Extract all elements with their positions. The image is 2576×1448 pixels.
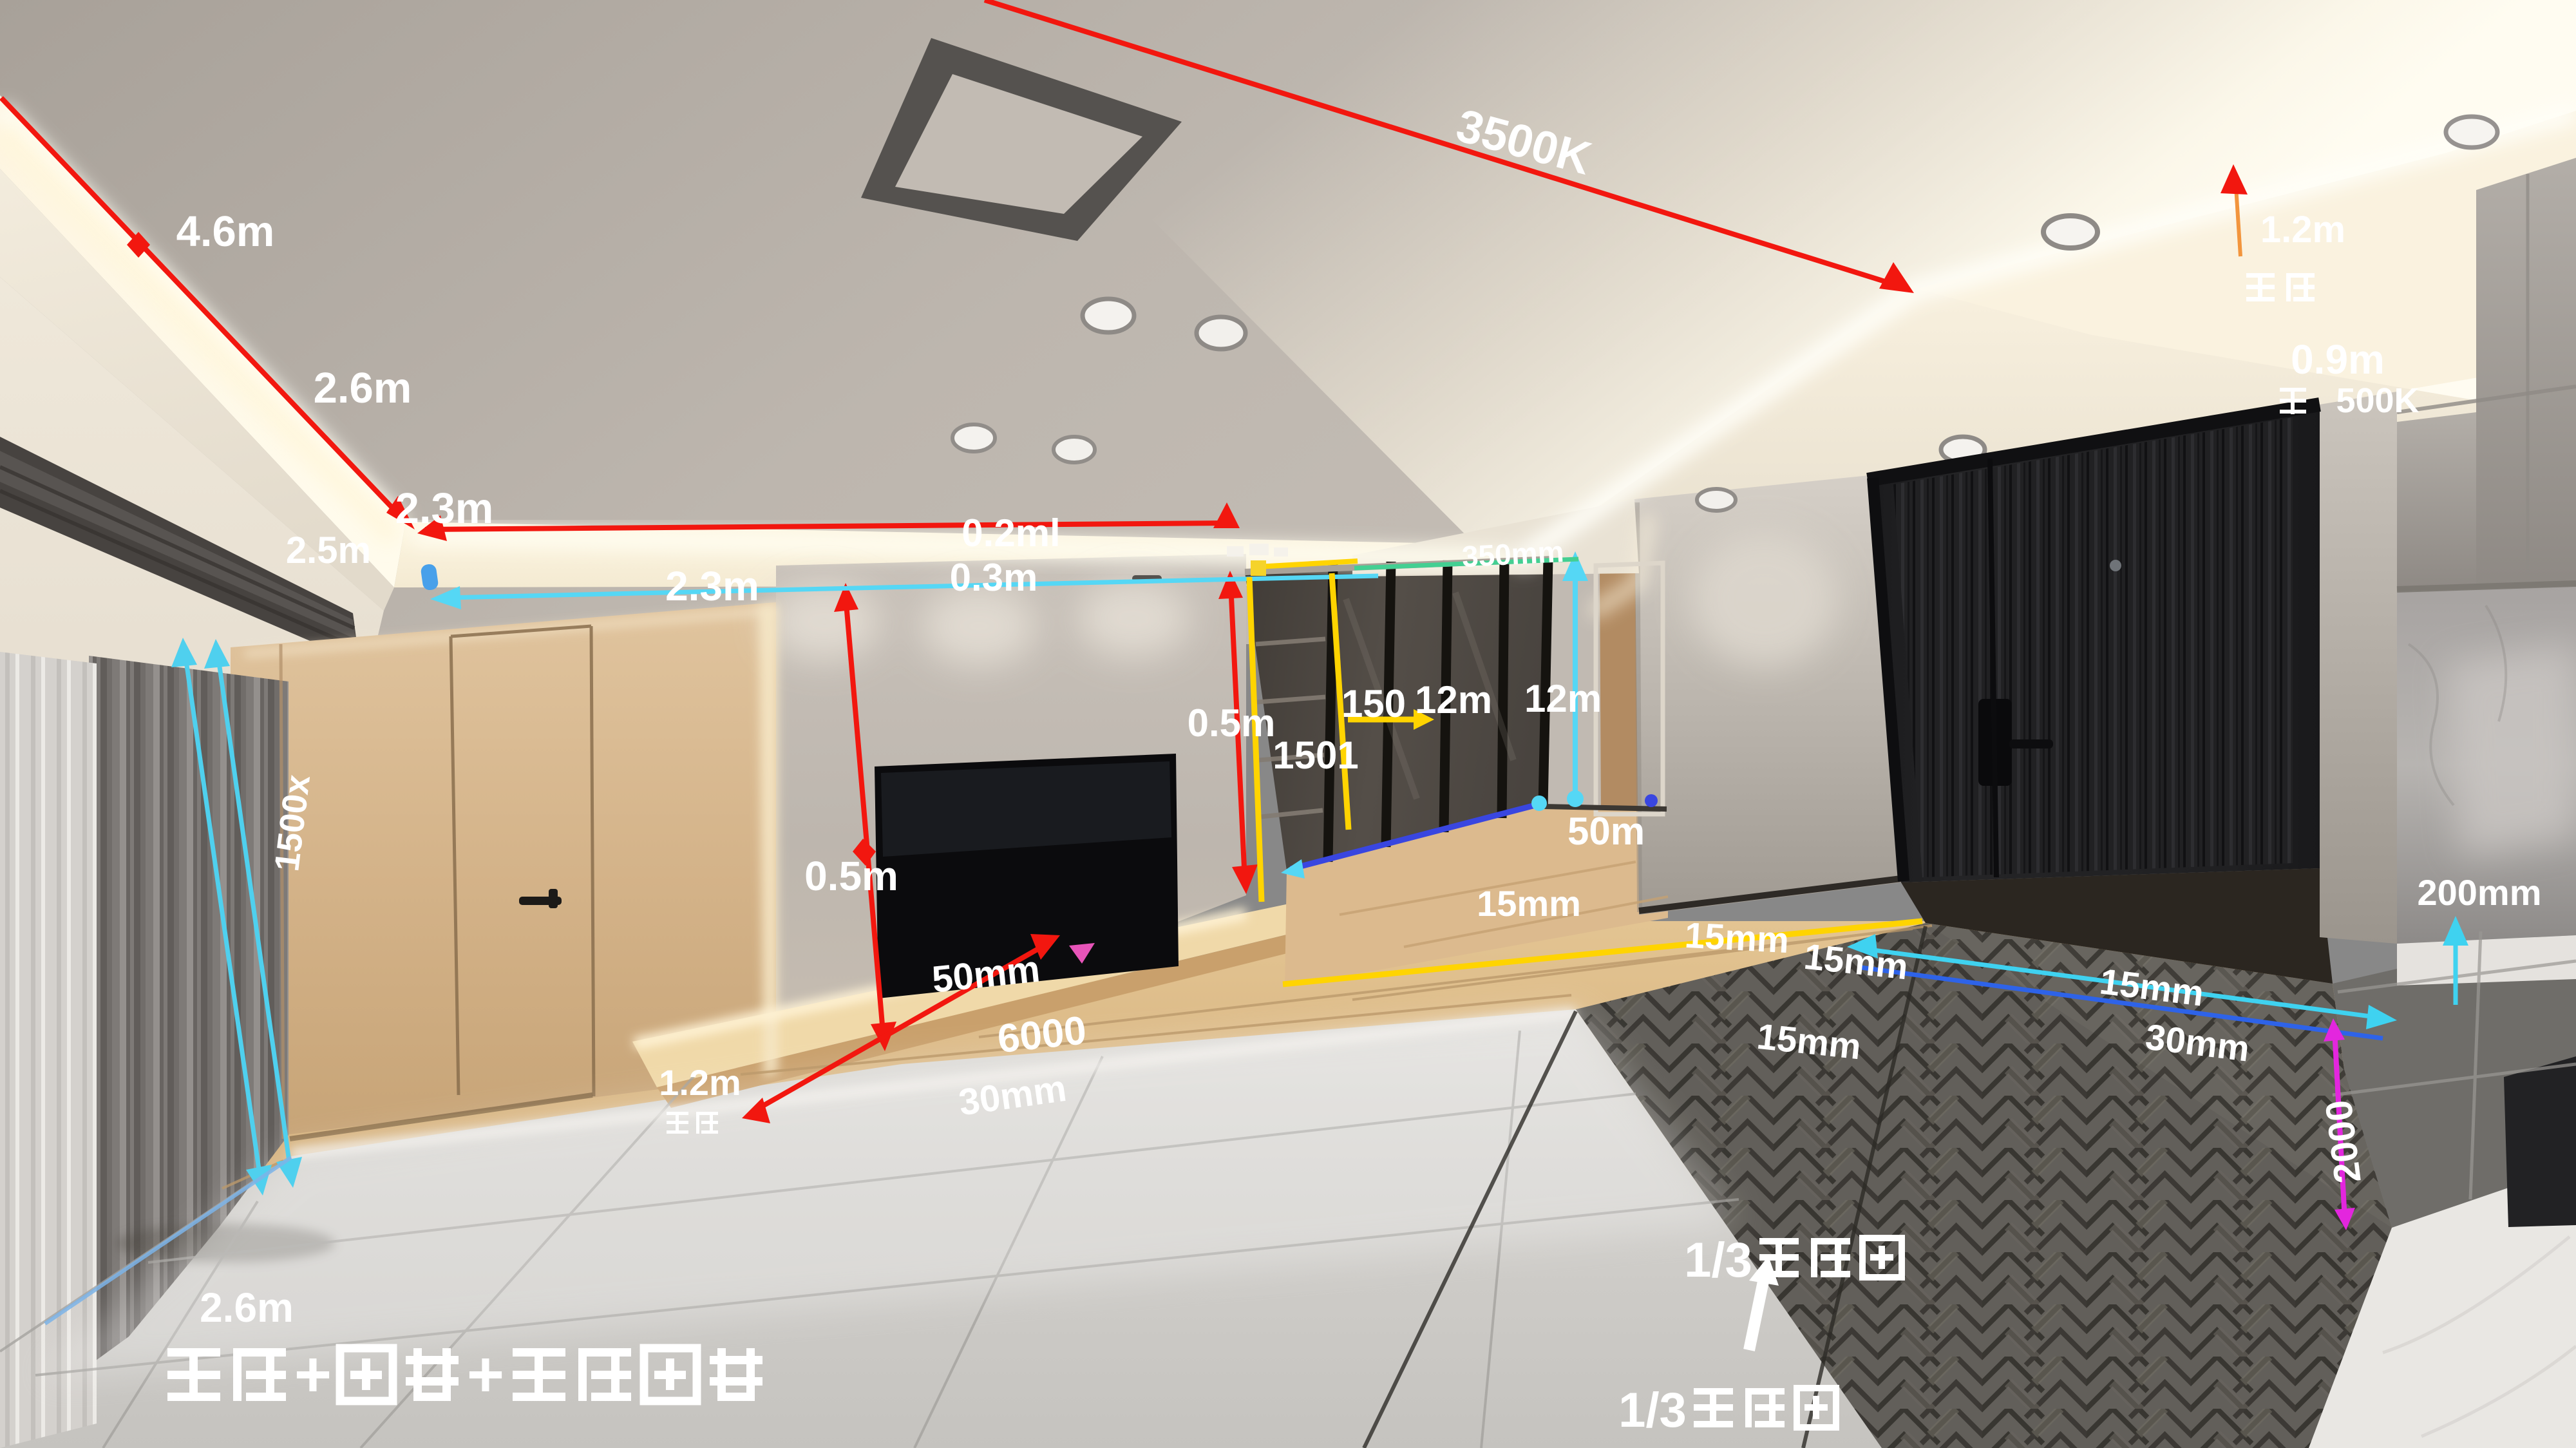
svg-text:1501: 1501	[1273, 734, 1358, 777]
svg-text:0.9m: 0.9m	[2291, 336, 2385, 383]
svg-text:350mm: 350mm	[1461, 535, 1565, 573]
svg-text:2.3m: 2.3m	[665, 563, 759, 609]
svg-text:0.5m: 0.5m	[1188, 701, 1276, 745]
svg-text:150: 150	[1341, 682, 1406, 725]
svg-text:12m: 12m	[1524, 677, 1602, 720]
svg-text:1.2m: 1.2m	[2260, 209, 2345, 251]
svg-text:12m: 12m	[1415, 678, 1492, 721]
svg-text:0.3m: 0.3m	[950, 556, 1038, 599]
svg-text:+: +	[294, 1338, 332, 1411]
svg-text:2.6m: 2.6m	[200, 1284, 294, 1331]
svg-text:0.2ml: 0.2ml	[961, 511, 1060, 555]
svg-text:2.3m: 2.3m	[395, 484, 494, 533]
svg-text:2.5m: 2.5m	[286, 529, 371, 571]
svg-text:+: +	[467, 1338, 504, 1411]
svg-text:0.5m: 0.5m	[804, 853, 898, 899]
svg-text:15mm: 15mm	[1477, 883, 1581, 924]
svg-text:1.2m: 1.2m	[659, 1062, 741, 1103]
svg-text:2.6m: 2.6m	[314, 364, 412, 412]
svg-text:15mm: 15mm	[1684, 915, 1790, 960]
svg-text:200mm: 200mm	[2417, 872, 2541, 913]
svg-text:500K: 500K	[2336, 381, 2419, 420]
svg-text:6000: 6000	[996, 1008, 1088, 1062]
svg-text:4.6m: 4.6m	[176, 207, 275, 256]
svg-text:1/3: 1/3	[1684, 1233, 1752, 1288]
svg-text:1/3: 1/3	[1618, 1383, 1687, 1438]
svg-text:50m: 50m	[1567, 810, 1645, 853]
